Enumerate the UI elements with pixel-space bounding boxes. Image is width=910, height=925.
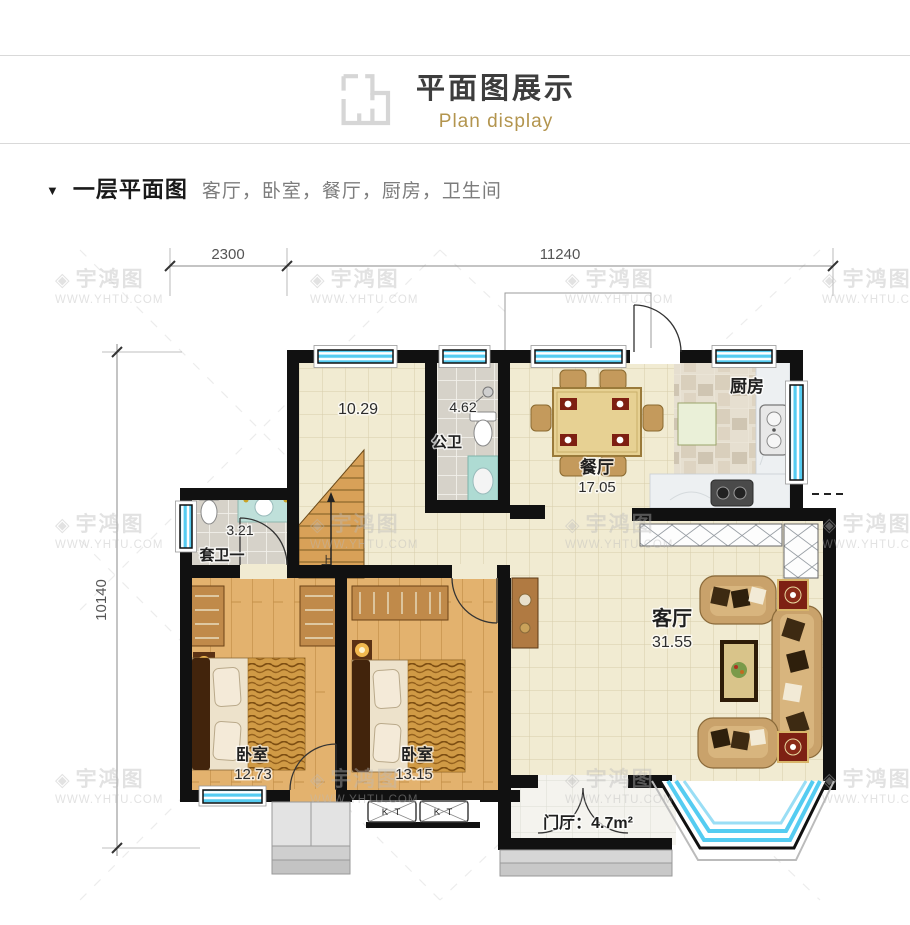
window: [712, 346, 776, 368]
triangle-marker-icon: ▼: [46, 183, 59, 198]
page-subtitle: Plan display: [439, 111, 553, 133]
stove: [711, 480, 753, 506]
suite-bath-name: 套卫一: [198, 546, 244, 564]
coffee-table: [720, 640, 758, 702]
wardrobe: [352, 586, 448, 620]
front-steps: [500, 850, 672, 863]
divider-top: [0, 55, 910, 56]
dim-top-left: 2300: [211, 246, 244, 263]
wardrobe: [190, 586, 224, 646]
dining-area: 17.05: [578, 479, 616, 496]
lamp-table-bottom: [778, 732, 808, 762]
divider-header: [0, 143, 910, 144]
bedroom1-name: 卧室: [236, 745, 268, 764]
public-bath-name: 公卫: [432, 434, 462, 451]
window: [439, 346, 490, 368]
loveseat-top: [700, 576, 776, 624]
window: [786, 381, 808, 484]
bedroom2-area: 13.15: [395, 766, 433, 783]
floor-plan: 上: [0, 225, 910, 925]
window: [199, 786, 266, 806]
floorplan-icon: [334, 69, 394, 129]
living-name: 客厅: [651, 606, 692, 630]
hall-area: 10.29: [338, 401, 378, 418]
tv-cabinet: [640, 524, 782, 546]
section-title: 一层平面图: [73, 172, 188, 204]
entry-label: 门厅：4.7m²: [543, 813, 633, 832]
bedroom1-area: 12.73: [234, 766, 272, 783]
ac-platform: K T: [420, 801, 468, 822]
dim-top-right: 11240: [540, 246, 581, 263]
living-area: 31.55: [652, 634, 692, 651]
svg-text:K T: K T: [434, 807, 455, 818]
bedroom2-furniture: [352, 586, 465, 772]
loveseat-bottom: [698, 718, 778, 768]
plan-display-page: 平面图展示 Plan display ▼ 一层平面图 客厅，卧室，餐厅，厨房，卫…: [0, 0, 910, 925]
corner-cabinet: [512, 578, 538, 648]
ac-platform: K T: [368, 801, 416, 822]
wardrobe: [300, 586, 338, 646]
page-header: 平面图展示 Plan display: [0, 60, 910, 138]
side-cabinet: [784, 524, 818, 578]
public-bath-area: 4.62: [449, 399, 476, 415]
lamp-table-top: [778, 580, 808, 610]
window: [314, 346, 397, 368]
sink: [760, 405, 788, 455]
bay-window: [652, 781, 834, 860]
section-room-list: 客厅，卧室，餐厅，厨房，卫生间: [202, 176, 502, 203]
svg-text:K T: K T: [382, 807, 403, 818]
suite-bath-area: 3.21: [226, 522, 253, 538]
page-title: 平面图展示: [416, 65, 576, 107]
dining-name: 餐厅: [580, 457, 614, 477]
dim-left: 10140: [93, 579, 110, 621]
window: [176, 501, 197, 552]
window: [531, 346, 626, 368]
bedroom2-name: 卧室: [401, 745, 433, 764]
kitchen-name: 厨房: [730, 376, 764, 396]
fridge: [678, 403, 716, 445]
section-heading: ▼ 一层平面图 客厅，卧室，餐厅，厨房，卫生间: [46, 172, 502, 204]
